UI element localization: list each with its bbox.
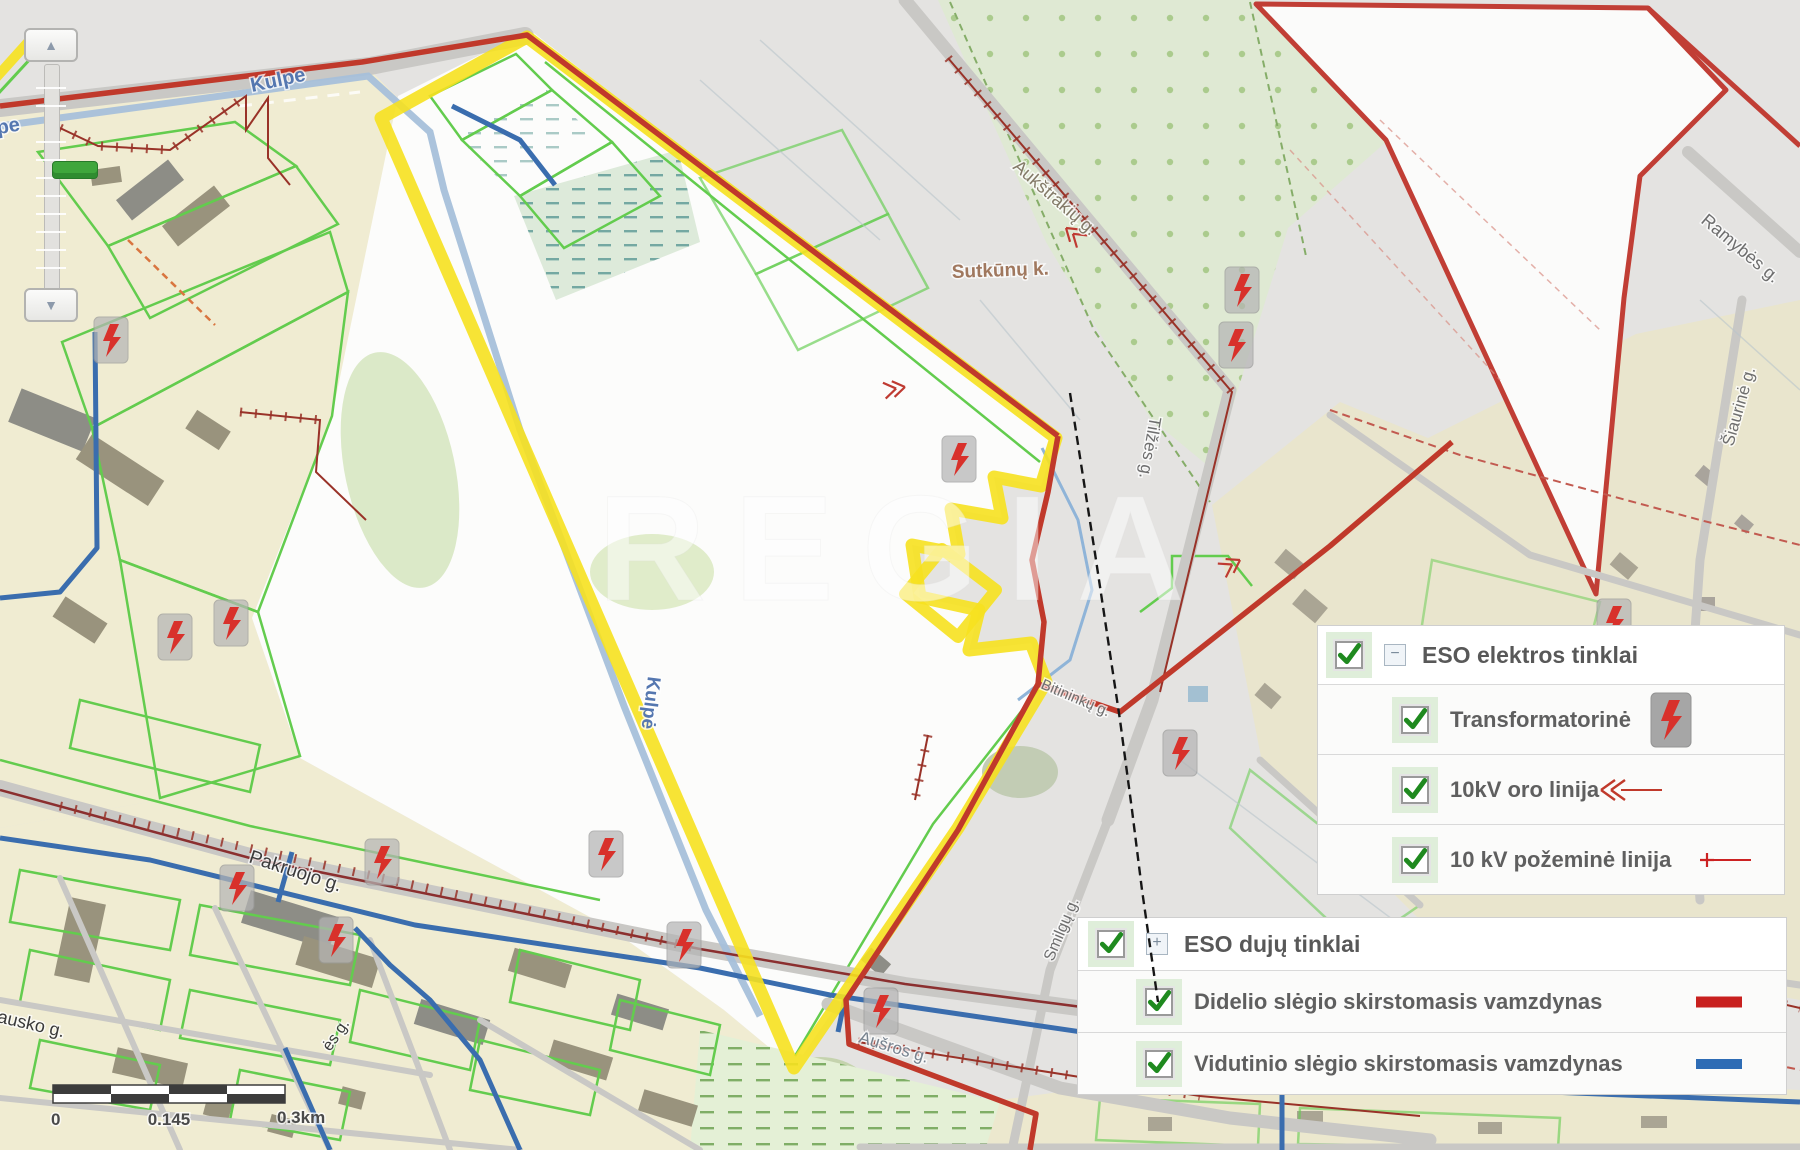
checkbox-transformatorine[interactable]	[1401, 706, 1429, 734]
zoom-out-button[interactable]: ▼	[24, 288, 78, 322]
medium-pressure-line-swatch	[1696, 1059, 1742, 1069]
checkbox-eso-dujos[interactable]	[1097, 930, 1125, 958]
collapse-icon[interactable]: −	[1384, 644, 1406, 666]
high-pressure-line-swatch	[1696, 996, 1742, 1007]
legend-label: 10kV oro linija	[1450, 777, 1599, 803]
watermark: REGIA	[597, 464, 1212, 632]
legend-label: Vidutinio slėgio skirstomasis vamzdynas	[1194, 1051, 1623, 1077]
legend-elektros-header: − ESO elektros tinklai	[1318, 626, 1784, 684]
settlement-label: Sutkūnų k.	[951, 259, 1049, 283]
zoom-in-icon: ▲	[44, 37, 58, 53]
legend-row-pozemine-linija: 10 kV požeminė linija	[1318, 824, 1784, 894]
scale-start: 0	[51, 1110, 60, 1129]
legend-label: 10 kV požeminė linija	[1450, 847, 1671, 873]
legend-row-oro-linija: 10kV oro linija	[1318, 754, 1784, 824]
expand-icon[interactable]: +	[1146, 933, 1168, 955]
scale-mid: 0.145	[148, 1110, 191, 1129]
checkbox-vidutinio-slegio[interactable]	[1145, 1050, 1173, 1078]
zoom-control: ▲ ▼	[22, 26, 82, 328]
legend-row-vidutinio-slegio: Vidutinio slėgio skirstomasis vamzdynas	[1078, 1032, 1786, 1094]
zoom-out-icon: ▼	[44, 297, 58, 313]
underground-line-icon	[1700, 850, 1752, 870]
checkbox-oro-linija[interactable]	[1401, 776, 1429, 804]
scale-end: 0.3km	[277, 1108, 325, 1127]
legend-title: ESO dujų tinklai	[1184, 931, 1360, 958]
legend-eso-elektros: − ESO elektros tinklai Transformatorinė …	[1318, 626, 1784, 894]
checkbox-pozemine-linija[interactable]	[1401, 846, 1429, 874]
zoom-slider-track[interactable]	[44, 64, 60, 292]
legend-row-transformatorine: Transformatorinė	[1318, 684, 1784, 754]
legend-title: ESO elektros tinklai	[1422, 642, 1638, 669]
zoom-in-button[interactable]: ▲	[24, 28, 78, 62]
legend-eso-dujos: + ESO dujų tinklai Didelio slėgio skirst…	[1078, 918, 1786, 1094]
overhead-line-icon	[1598, 776, 1664, 804]
zoom-slider-handle[interactable]	[52, 161, 98, 179]
map-application: Kulpe Kulpe Kulpė Pakruojo g. Aukštrakių…	[0, 0, 1800, 1150]
legend-row-didelio-slegio: Didelio slėgio skirstomasis vamzdynas	[1078, 970, 1786, 1032]
legend-label: Didelio slėgio skirstomasis vamzdynas	[1194, 989, 1602, 1015]
legend-label: Transformatorinė	[1450, 707, 1631, 733]
transformer-icon	[1650, 692, 1692, 748]
checkbox-eso-elektros[interactable]	[1335, 641, 1363, 669]
checkbox-didelio-slegio[interactable]	[1145, 988, 1173, 1016]
legend-dujos-header: + ESO dujų tinklai	[1078, 918, 1786, 970]
